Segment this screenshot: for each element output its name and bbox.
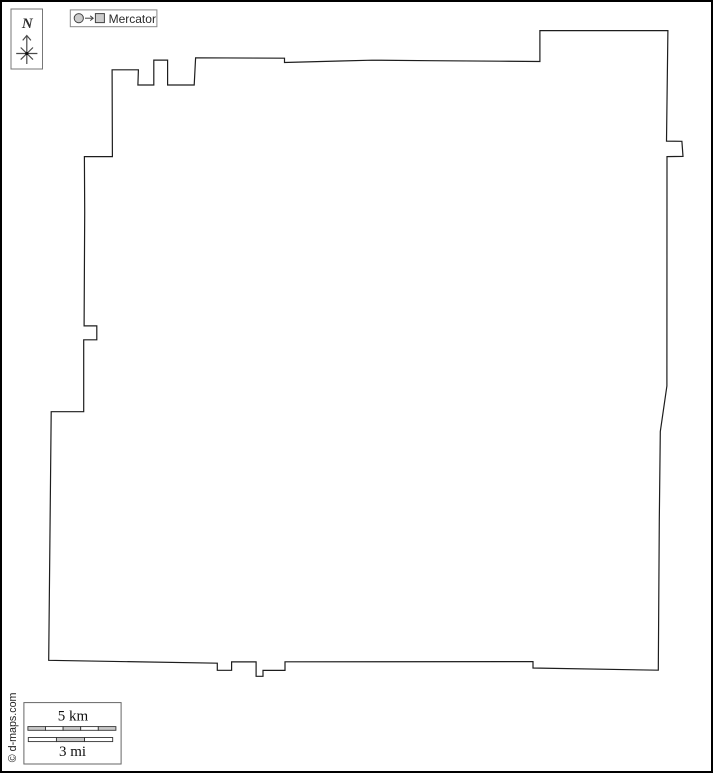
svg-text:3 mi: 3 mi	[59, 744, 86, 760]
svg-text:© d-maps.com: © d-maps.com	[7, 692, 19, 762]
svg-text:N: N	[21, 16, 34, 32]
svg-text:5 km: 5 km	[58, 709, 89, 725]
svg-text:Mercator: Mercator	[109, 12, 156, 26]
